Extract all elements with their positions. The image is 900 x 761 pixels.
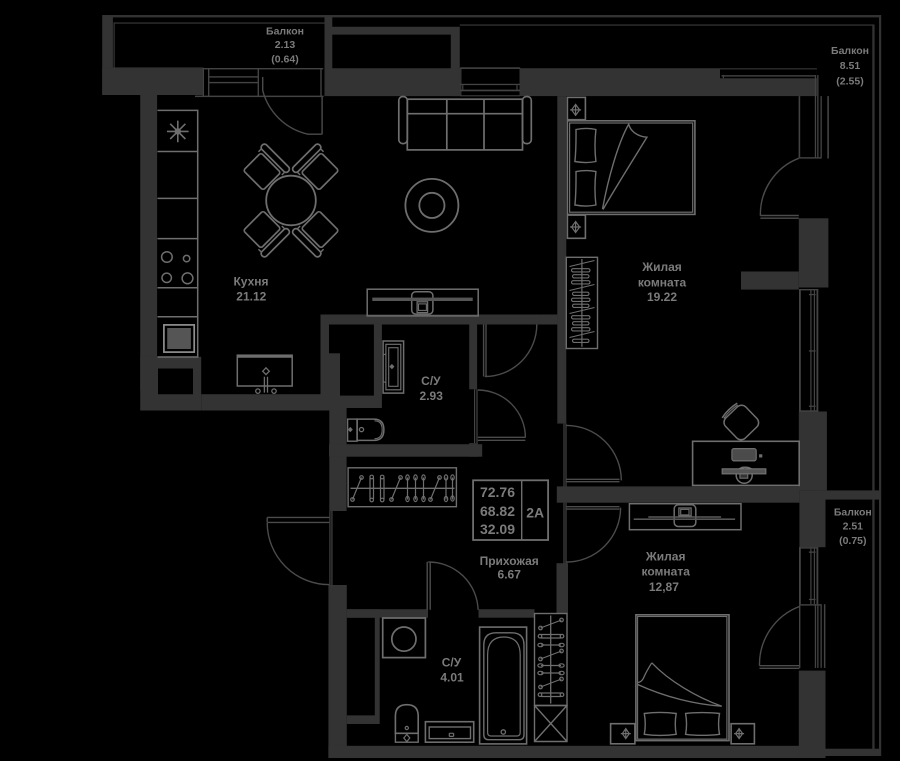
svg-text:19.22: 19.22: [647, 290, 677, 304]
svg-text:8.51: 8.51: [840, 60, 861, 72]
svg-text:Балкон: Балкон: [831, 45, 869, 57]
svg-text:72.76: 72.76: [480, 484, 515, 500]
svg-text:Кухня: Кухня: [233, 275, 268, 289]
svg-text:68.82: 68.82: [480, 503, 515, 519]
svg-text:2.13: 2.13: [275, 39, 296, 51]
svg-text:12,87: 12,87: [649, 580, 679, 594]
svg-text:(0.75): (0.75): [839, 535, 866, 547]
svg-text:комната: комната: [642, 565, 691, 579]
svg-text:(0.64): (0.64): [271, 54, 298, 66]
svg-text:32.09: 32.09: [480, 521, 515, 537]
svg-text:комната: комната: [638, 276, 687, 290]
svg-text:2.51: 2.51: [843, 521, 864, 533]
svg-text:Жилая: Жилая: [641, 260, 682, 274]
svg-text:С/У: С/У: [442, 656, 462, 670]
svg-text:6.67: 6.67: [498, 568, 522, 582]
svg-text:С/У: С/У: [421, 374, 441, 388]
svg-text:(2.55): (2.55): [836, 75, 863, 87]
svg-text:4.01: 4.01: [440, 670, 464, 684]
svg-text:Балкон: Балкон: [834, 506, 872, 518]
svg-text:2А: 2А: [526, 504, 544, 520]
svg-text:Балкон: Балкон: [266, 25, 304, 37]
svg-text:Прихожая: Прихожая: [480, 554, 539, 568]
svg-text:Жилая: Жилая: [645, 550, 686, 564]
svg-text:2.93: 2.93: [420, 389, 444, 403]
svg-text:21.12: 21.12: [236, 290, 266, 304]
